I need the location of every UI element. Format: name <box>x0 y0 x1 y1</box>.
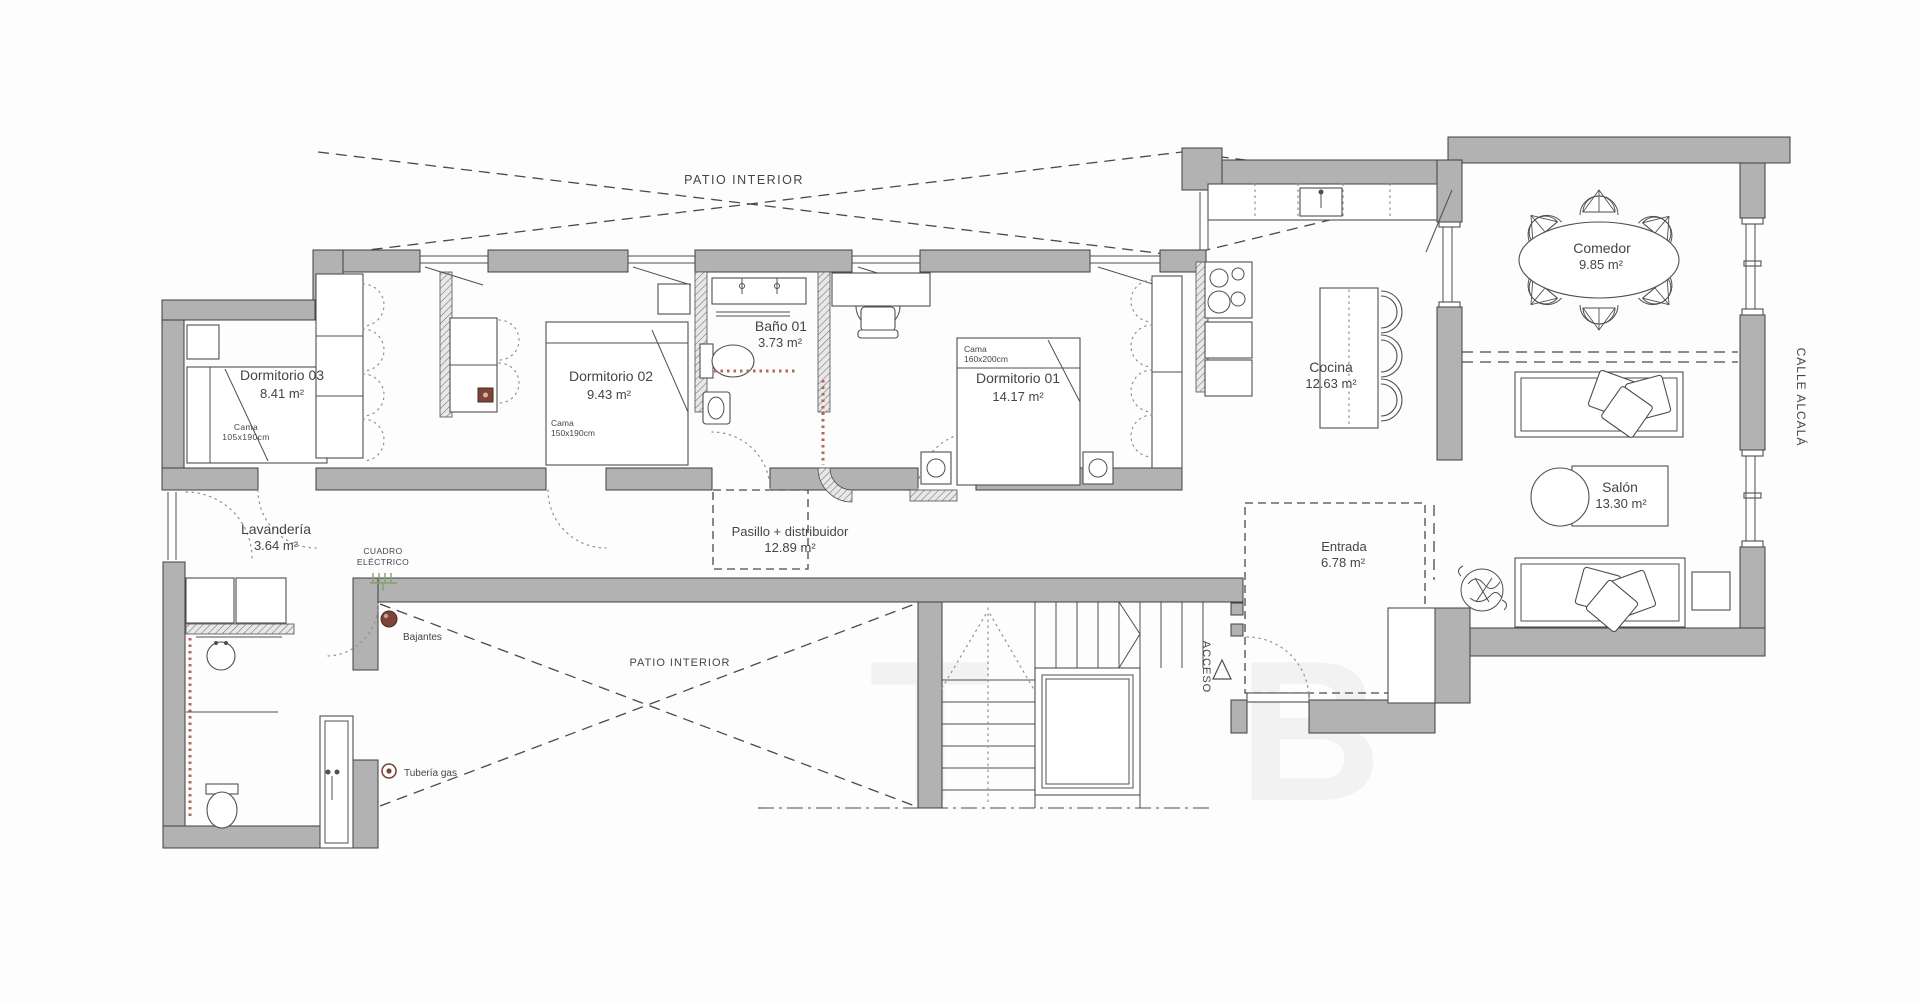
label-lavanderia: Lavandería <box>241 521 311 537</box>
toilet-tank <box>700 344 713 378</box>
nightstand <box>658 284 690 314</box>
oven-unit <box>1205 322 1252 358</box>
label-dormitorio-01: Dormitorio 01 <box>976 370 1060 386</box>
label-cuadro-electrico-2: ELÉCTRICO <box>357 557 409 567</box>
label-cama-03: Cama <box>234 422 258 432</box>
label-dormitorio-02: Dormitorio 02 <box>569 368 653 384</box>
label-cocina-area: 12.63 m² <box>1305 376 1357 391</box>
label-pasillo: Pasillo + distribuidor <box>732 524 849 539</box>
entry-door-leaf <box>1247 693 1309 702</box>
entry-closet <box>1388 608 1435 703</box>
cocina-fixtures <box>1205 184 1437 428</box>
vanity <box>712 278 806 304</box>
bajantes-icon <box>381 611 397 627</box>
label-dormitorio-03-area: 8.41 m² <box>260 386 305 401</box>
label-cama-02-size: 150x190cm <box>551 428 595 438</box>
tuberia-gas-icon <box>382 764 396 778</box>
stool <box>1381 291 1402 333</box>
label-dormitorio-02-area: 9.43 m² <box>587 387 632 402</box>
dining-chair <box>1580 190 1618 215</box>
label-entrada: Entrada <box>1321 539 1367 554</box>
label-cama-03-size: 105x190cm <box>222 432 270 442</box>
dining-chair <box>1580 305 1618 330</box>
label-salon: Salón <box>1602 479 1638 495</box>
washer <box>186 578 234 623</box>
wardrobe <box>316 274 363 458</box>
label-cama-01: Cama <box>964 344 987 354</box>
nightstand <box>1083 452 1113 484</box>
label-comedor: Comedor <box>1573 240 1631 256</box>
access-arrow-icon <box>1213 660 1231 679</box>
nightstand <box>921 452 951 484</box>
toilet-bowl <box>207 792 237 828</box>
lavanderia-bano02-fixtures <box>186 578 353 848</box>
utility-marker-dot <box>483 393 488 398</box>
label-pasillo-area: 12.89 m² <box>764 540 816 555</box>
stool <box>1381 335 1402 377</box>
desk <box>832 273 930 306</box>
label-bano-01: Baño 01 <box>755 318 807 334</box>
nightstand <box>187 325 219 359</box>
entrada-furniture <box>1388 608 1435 703</box>
washbasin <box>207 642 235 670</box>
label-tuberia-gas: Tubería gas <box>404 768 457 779</box>
floorplan-drawing: T B <box>0 0 1920 1003</box>
round-table <box>1531 468 1589 526</box>
label-bano-01-area: 3.73 m² <box>758 335 803 350</box>
label-acceso: ACCESO <box>1200 641 1212 693</box>
plant <box>1458 566 1506 611</box>
floorplan-canvas: T B <box>0 0 1920 1003</box>
label-lavanderia-area: 3.64 m² <box>254 538 299 553</box>
salon-furniture <box>1458 370 1730 633</box>
label-cama-01-size: 160x200cm <box>964 354 1008 364</box>
label-cama-02: Cama <box>551 418 574 428</box>
tall-unit <box>1205 360 1252 396</box>
dryer <box>236 578 286 623</box>
elevator <box>1035 668 1140 795</box>
side-table <box>1692 572 1730 610</box>
label-cocina: Cocina <box>1309 359 1353 375</box>
label-cuadro-electrico-1: CUADRO <box>363 546 402 556</box>
label-dormitorio-01-area: 14.17 m² <box>992 389 1044 404</box>
stool <box>1381 379 1402 421</box>
label-salon-area: 13.30 m² <box>1595 496 1647 511</box>
cooktop <box>1205 262 1252 318</box>
label-patio-interior-bottom: PATIO INTERIOR <box>630 657 731 669</box>
label-entrada-area: 6.78 m² <box>1321 555 1366 570</box>
bano-01-fixtures <box>700 278 823 465</box>
label-dormitorio-03: Dormitorio 03 <box>240 367 324 383</box>
label-bajantes: Bajantes <box>403 632 442 643</box>
label-patio-interior-top: PATIO INTERIOR <box>684 173 804 187</box>
label-calle-alcala: CALLE ALCALÁ <box>1794 348 1809 447</box>
label-comedor-area: 9.85 m² <box>1579 257 1624 272</box>
